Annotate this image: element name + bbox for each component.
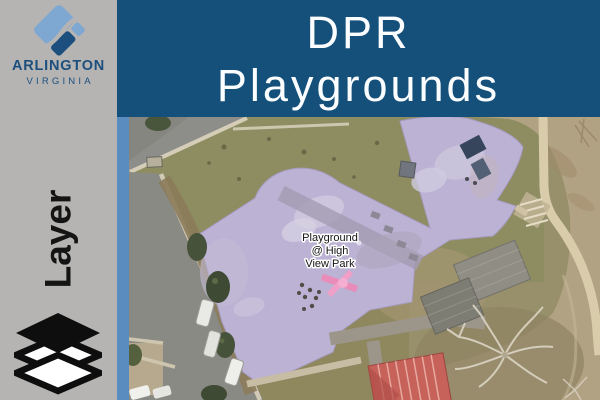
layer-panel-toggle[interactable]: Layer (0, 117, 117, 400)
header: ARLINGTON VIRGINIA DPR Playgrounds (0, 0, 600, 117)
dpr-playgrounds-app: ARLINGTON VIRGINIA DPR Playgrounds Layer (0, 0, 600, 400)
svg-text:View Park: View Park (305, 258, 355, 270)
aerial-imagery: Playground @ High View Park (129, 117, 600, 400)
body: Layer (0, 117, 600, 400)
logo-subname: VIRGINIA (23, 76, 94, 87)
arlington-logo: ARLINGTON VIRGINIA (0, 0, 117, 117)
layer-label: Layer (37, 190, 79, 289)
layers-icon[interactable] (14, 311, 102, 397)
svg-text:Playground: Playground (302, 232, 358, 244)
aerial-map-view[interactable]: Playground @ High View Park (129, 117, 600, 400)
logo-name: ARLINGTON (12, 59, 105, 74)
map-frame-border (117, 117, 129, 400)
arlington-logo-icon (23, 3, 95, 58)
app-title: DPR Playgrounds (117, 0, 600, 117)
app-title-line2: Playgrounds (217, 59, 500, 112)
svg-text:@ High: @ High (312, 245, 349, 257)
app-title-line1: DPR (306, 6, 410, 59)
